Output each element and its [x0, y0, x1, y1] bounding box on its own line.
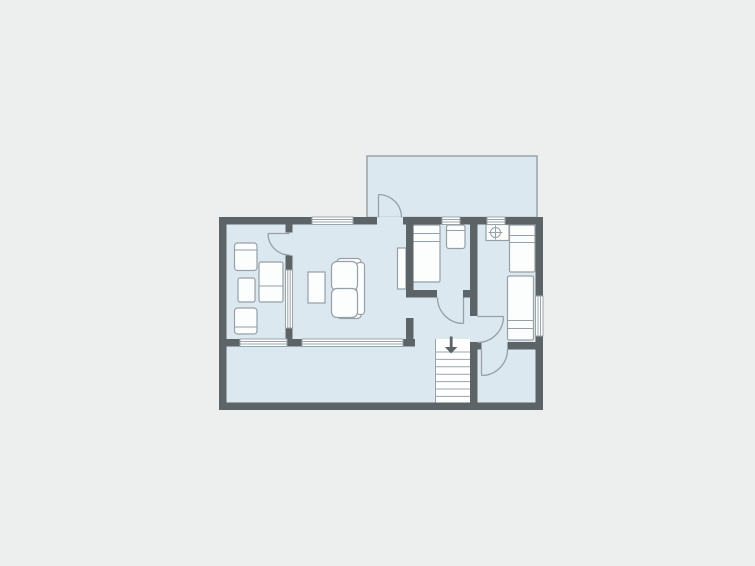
lower-window-wall — [219, 339, 240, 347]
bedroom-wall — [406, 225, 414, 298]
window-top-right-bedroom — [487, 217, 505, 225]
staircase — [436, 337, 471, 403]
bed-2 — [510, 225, 536, 272]
bed-3 — [508, 276, 534, 340]
lower-room-top-wall — [508, 342, 536, 350]
floor-plan-drawing — [0, 0, 755, 566]
floor-plan-canvas — [0, 0, 755, 566]
main-floor — [219, 217, 543, 410]
washbasin — [486, 225, 509, 241]
window-right-wall — [536, 296, 544, 336]
nightstand — [447, 225, 466, 249]
sofa-cushion-2 — [332, 289, 358, 318]
lower-window-wall — [403, 339, 415, 347]
top-wall-segment — [219, 217, 312, 225]
top-wall-segment — [460, 217, 487, 225]
window-top-living — [312, 217, 353, 225]
side-table-1 — [238, 278, 255, 302]
arrow-stem — [450, 337, 453, 348]
sofa — [332, 259, 365, 319]
upper-terrace — [367, 156, 537, 218]
coffee-table — [308, 272, 325, 303]
shelf — [398, 248, 407, 289]
top-wall-segment — [403, 217, 442, 225]
lower-room-left-wall — [470, 342, 478, 410]
square-table — [259, 262, 283, 302]
left-wall — [219, 217, 227, 410]
partition-wall — [286, 256, 293, 271]
armchair-2 — [235, 308, 258, 334]
sofa-cushion-1 — [332, 262, 358, 291]
partition-wall — [286, 225, 293, 233]
window-lower-left — [240, 339, 287, 347]
bedroom-bottom-wall — [406, 290, 437, 298]
window-top-bedroom — [442, 217, 460, 225]
right-bedroom-wall — [470, 225, 478, 317]
armchair-1 — [235, 243, 258, 271]
top-wall-segment — [353, 217, 377, 225]
lower-window-wall — [287, 339, 302, 347]
bottom-wall — [219, 403, 543, 411]
glazed-partition — [286, 270, 293, 328]
window-lower-long — [302, 339, 403, 347]
